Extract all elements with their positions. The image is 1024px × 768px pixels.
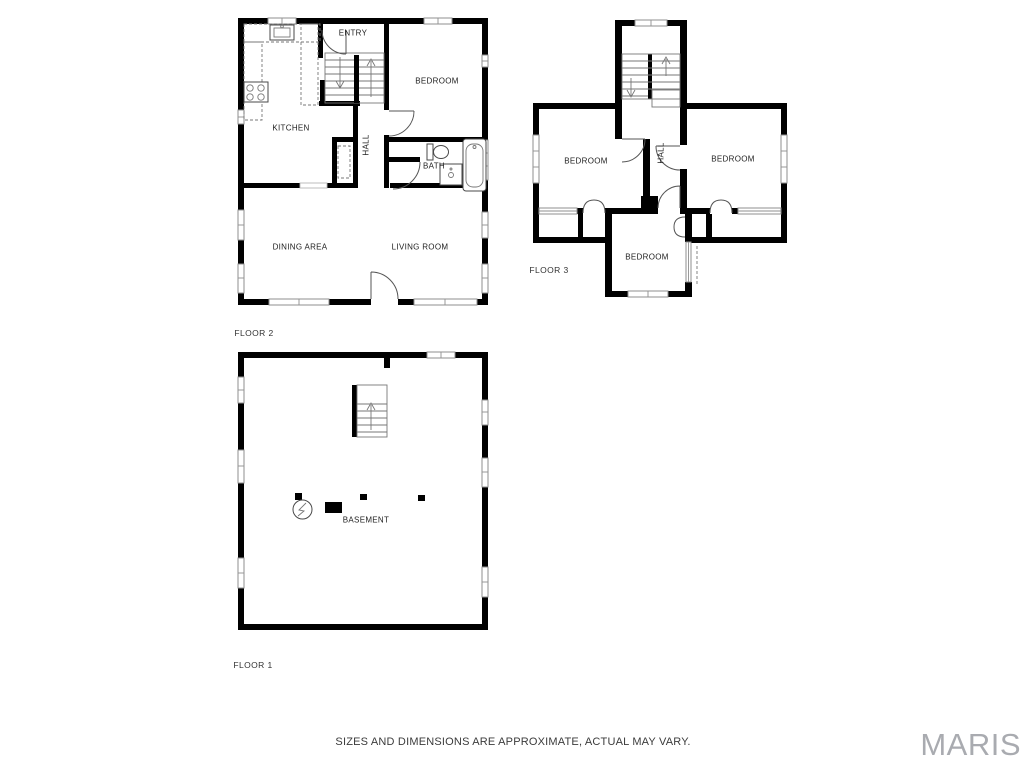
room-label-hall-f3: HALL (657, 142, 666, 163)
kitchen-sink-icon (270, 25, 294, 40)
floorplan-drawing (0, 0, 1024, 768)
furnace-icon (325, 502, 342, 513)
stove-icon (244, 82, 268, 102)
floor-label-1: FLOOR 1 (233, 660, 272, 670)
floor1-plan (238, 352, 488, 630)
stair-arrow-down (336, 57, 344, 88)
cased-opening (300, 183, 327, 188)
room-label-living-room: LIVING ROOM (392, 243, 449, 252)
room-label-basement: BASEMENT (343, 516, 389, 525)
maris-watermark: MARIS (920, 727, 1021, 763)
window (238, 450, 244, 483)
floor1-windows (238, 352, 488, 597)
room-label-entry: ENTRY (339, 29, 367, 38)
support-post (418, 495, 425, 501)
support-post (360, 494, 367, 500)
window (238, 264, 244, 293)
window (533, 135, 539, 183)
room-label-bedroom-f3-right: BEDROOM (711, 155, 754, 164)
window (482, 458, 488, 487)
floor1-walls (238, 352, 488, 630)
floor2-plan (238, 18, 488, 305)
floorplan-page: KITCHEN ENTRY BEDROOM HALL BATH DINING A… (0, 0, 1024, 768)
floor-label-2: FLOOR 2 (234, 328, 273, 338)
window (414, 299, 477, 305)
room-label-bedroom-f3-left: BEDROOM (564, 157, 607, 166)
stair-arrow-down (627, 78, 635, 97)
counter-outline (301, 24, 318, 105)
toilet-icon (427, 144, 449, 160)
window (482, 400, 488, 425)
stair-arrow-up (367, 403, 375, 430)
hall-closet (338, 146, 350, 178)
water-heater-icon (293, 500, 312, 519)
room-label-dining-area: DINING AREA (273, 243, 328, 252)
bathtub-icon (463, 139, 486, 191)
support-post (295, 493, 302, 500)
room-label-bedroom-f2: BEDROOM (415, 77, 458, 86)
floor-label-3: FLOOR 3 (529, 265, 568, 275)
door-swing (658, 186, 680, 208)
door-swing (622, 139, 645, 162)
room-label-hall-f2: HALL (362, 134, 371, 155)
bifold-closet-door (583, 200, 605, 213)
stair-arrow-up (367, 59, 375, 97)
bifold-closet-door (674, 217, 685, 237)
floor2-stairs-icon (325, 53, 384, 103)
room-label-bedroom-f3-lower: BEDROOM (625, 253, 668, 262)
door-swing (371, 272, 398, 299)
door-swing (389, 111, 414, 136)
stair-landing (652, 90, 680, 107)
stair-arrow-up (662, 57, 670, 76)
window (482, 264, 488, 293)
floor2-walls (238, 18, 488, 305)
room-label-kitchen: KITCHEN (272, 124, 309, 133)
window (781, 135, 787, 183)
room-label-bath: BATH (423, 162, 445, 171)
counter-outline (244, 42, 262, 120)
floor1-stairs-icon (357, 385, 387, 437)
disclaimer-text: SIZES AND DIMENSIONS ARE APPROXIMATE, AC… (335, 736, 690, 748)
bifold-closet-door (710, 200, 732, 213)
floor2-windows (238, 18, 488, 305)
